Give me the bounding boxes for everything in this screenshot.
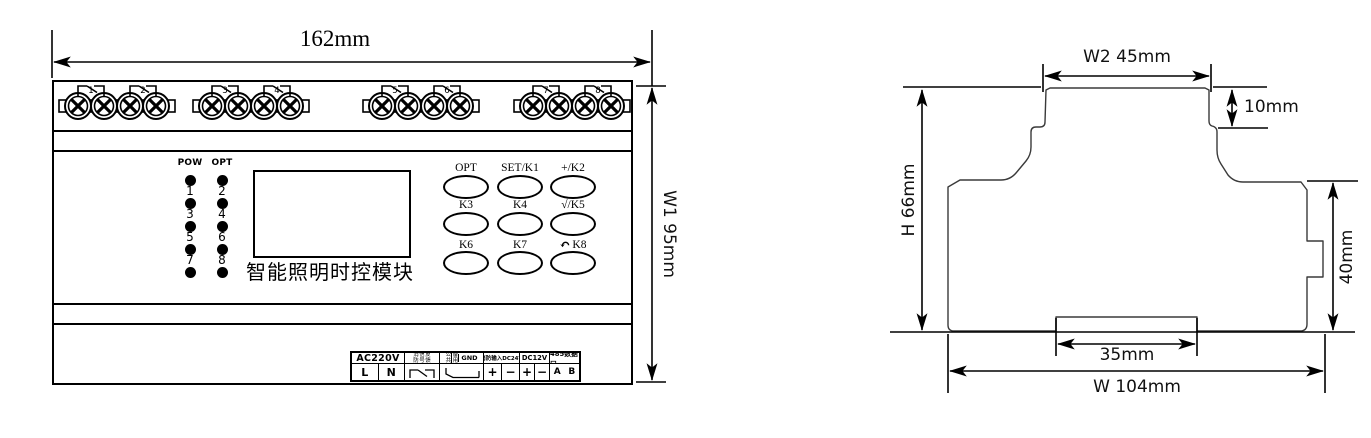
bottom-terminal-block: AC220V L N 消防 信号 反馈 公共 备用 GND: [350, 351, 581, 382]
check-k5-button: [550, 212, 596, 236]
k4-button: [497, 212, 543, 236]
dc12v-label: DC12V: [520, 353, 549, 363]
channel-led-number: 3: [183, 208, 197, 221]
led-label-opt: OPT: [207, 158, 237, 168]
dim-width-162: 162mm: [270, 26, 400, 52]
lcd-display: [253, 170, 411, 258]
panel-divider-line: [54, 130, 631, 132]
terminal-n: N: [378, 364, 405, 380]
technical-drawing-canvas: 162mm W1 95mm 1 2 3 4 5 6 7 8 POW OPT 1 …: [0, 0, 1371, 438]
button-label-plus-k2: +/K2: [541, 162, 605, 174]
back-k8-button: [550, 251, 596, 275]
dim-w2-45: W2 45mm: [1057, 48, 1197, 68]
terminal-fire-input-dc24v: 消防输入DC24V + −: [483, 353, 519, 380]
k7-button: [497, 251, 543, 275]
rs485-label: 485数据口: [550, 353, 579, 363]
k8-label-text: K8: [572, 239, 586, 251]
channel-led: [217, 267, 228, 278]
fire-feedback-col3: 反馈: [425, 353, 431, 363]
set-k1-button: [497, 175, 543, 199]
minus-terminal: −: [501, 364, 519, 380]
dim-h-66: H 66mm: [899, 125, 919, 275]
relay-number: 5: [389, 87, 401, 96]
relay-number: 7: [540, 87, 552, 96]
panel-divider-line: [54, 303, 631, 305]
terminal-fire-feedback: 消防 信号 反馈: [404, 353, 439, 380]
channel-led-number: 5: [183, 231, 197, 244]
rs485-b: B: [565, 364, 580, 380]
panel-divider-line: [54, 323, 631, 325]
terminal-common-spare-gnd: 公共 备用 GND: [439, 353, 483, 380]
dim-height-w1-95: W1 95mm: [659, 159, 679, 309]
ac220v-label: AC220V: [352, 353, 404, 363]
side-view-profile: [948, 88, 1323, 331]
relay-number: 6: [441, 87, 453, 96]
dim-w-104: W 104mm: [1057, 378, 1217, 398]
dim-slot-35: 35mm: [1067, 346, 1187, 366]
opt-button: [443, 175, 489, 199]
channel-led-number: 6: [215, 231, 229, 244]
relay-number: 8: [592, 87, 604, 96]
terminal-l: L: [352, 364, 378, 380]
relay-contact-icon: [407, 366, 437, 379]
terminal-dc12v: DC12V + −: [519, 353, 549, 380]
return-arrow-icon: ↶: [560, 239, 571, 251]
panel-divider-line: [54, 150, 631, 152]
k6-button: [443, 251, 489, 275]
channel-led: [185, 267, 196, 278]
led-label-pow: POW: [175, 158, 205, 168]
rs485-a: A: [550, 364, 565, 380]
terminal-rs485: 485数据口 A B: [549, 353, 579, 380]
plus-k2-button: [550, 175, 596, 199]
channel-led-number: 8: [215, 254, 229, 267]
relay-number: 2: [137, 87, 149, 96]
fire-input-label: 消防输入DC24V: [484, 353, 519, 363]
plus-terminal: +: [520, 364, 534, 380]
switch-contact-icon: [442, 366, 482, 379]
common-spare-gnd-label: 公共 备用 GND: [440, 353, 483, 363]
spare-label: 备用: [451, 353, 458, 363]
channel-led-number: 7: [183, 254, 197, 267]
minus-terminal: −: [534, 364, 549, 380]
k3-button: [443, 212, 489, 236]
plus-terminal: +: [484, 364, 501, 380]
channel-led-number: 2: [215, 185, 229, 198]
terminal-ac220v: AC220V L N: [352, 353, 404, 380]
dim-step-10: 10mm: [1244, 98, 1314, 118]
button-label-check-k5: √/K5: [541, 199, 605, 211]
relay-number: 1: [85, 87, 97, 96]
product-title: 智能照明时控模块: [230, 262, 430, 285]
channel-led-number: 1: [183, 185, 197, 198]
relay-number: 4: [271, 87, 283, 96]
dim-clip-40: 40mm: [1337, 197, 1357, 317]
gnd-label: GND: [458, 354, 477, 362]
button-label-back-k8: ↶ K8: [541, 239, 605, 251]
fire-feedback-label: 消防 信号 反馈: [405, 353, 439, 363]
relay-number: 3: [219, 87, 231, 96]
channel-led-number: 4: [215, 208, 229, 221]
